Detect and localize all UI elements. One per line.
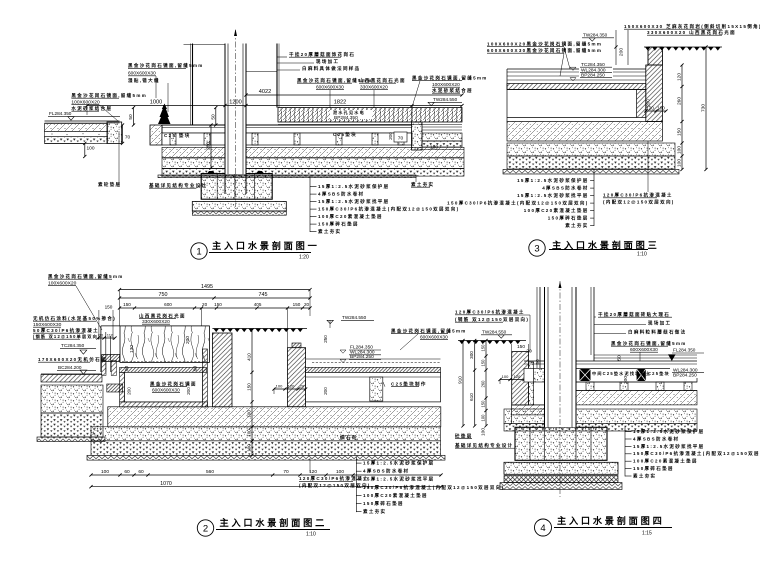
svg-text:100厚C20素混凝土垫层: 100厚C20素混凝土垫层 [318, 213, 383, 220]
svg-text:FL284.350: FL284.350 [673, 348, 696, 353]
svg-text:1:15: 1:15 [642, 531, 652, 537]
svg-text:250: 250 [323, 335, 328, 343]
svg-text:15厚1:2.5水泥砂浆保护层: 15厚1:2.5水泥砂浆保护层 [633, 428, 705, 435]
svg-text:100: 100 [86, 146, 94, 152]
svg-text:现场加工: 现场加工 [316, 58, 339, 65]
svg-text:1200: 1200 [229, 100, 241, 106]
svg-text:2: 2 [203, 524, 208, 535]
svg-text:15厚1:2.5水泥砂浆找平层: 15厚1:2.5水泥砂浆找平层 [318, 198, 390, 205]
svg-text:150厚C30/P6抗渗混凝土(内配双12@150双层双向): 150厚C30/P6抗渗混凝土(内配双12@150双层双向) [447, 200, 588, 207]
svg-text:150: 150 [247, 383, 252, 391]
svg-text:BC284.200: BC284.200 [58, 365, 82, 370]
svg-text:黑金沙花岗石镜面,留缝5mm: 黑金沙花岗石镜面,留缝5mm [128, 62, 204, 69]
svg-text:100: 100 [481, 428, 487, 436]
svg-text:120: 120 [677, 73, 683, 81]
svg-text:150厚C30/P6抗渗混凝土(内配双12@150双层双向): 150厚C30/P6抗渗混凝土(内配双12@150双层双向) [633, 450, 760, 457]
svg-text:主入口水景剖面图二: 主入口水景剖面图二 [220, 517, 328, 528]
svg-text:150厚C30/P6抗渗混凝土(内配双12@150双层双向): 150厚C30/P6抗渗混凝土(内配双12@150双层双向) [318, 206, 459, 213]
svg-text:湿贴,错大缝: 湿贴,错大缝 [128, 77, 160, 84]
svg-text:BP284.350: BP284.350 [334, 115, 358, 121]
svg-text:4: 4 [540, 523, 545, 534]
svg-text:100: 100 [481, 414, 486, 422]
svg-text:260: 260 [481, 380, 486, 388]
svg-text:200: 200 [127, 387, 132, 395]
svg-text:BP284.250: BP284.250 [673, 373, 697, 379]
svg-text:15厚1:2.5水泥砂浆找平层: 15厚1:2.5水泥砂浆找平层 [517, 192, 589, 199]
svg-text:15厚1:2.5水泥砂浆保护层: 15厚1:2.5水泥砂浆保护层 [318, 183, 390, 190]
svg-text:100: 100 [247, 444, 252, 452]
svg-text:200: 200 [185, 336, 191, 344]
svg-text:C25垫块: C25垫块 [333, 131, 357, 138]
svg-text:300: 300 [469, 351, 474, 359]
svg-text:20: 20 [202, 302, 208, 307]
svg-text:100: 100 [677, 146, 683, 154]
svg-text:150: 150 [481, 400, 486, 408]
svg-text:910: 910 [458, 376, 463, 384]
svg-text:4厚SBS防水卷材: 4厚SBS防水卷材 [318, 191, 364, 198]
svg-text:150: 150 [517, 344, 525, 350]
svg-text:130: 130 [129, 345, 135, 353]
svg-text:70: 70 [125, 135, 131, 141]
svg-text:TW284.550: TW284.550 [433, 97, 458, 102]
svg-text:100: 100 [247, 410, 252, 418]
svg-text:750: 750 [159, 292, 168, 298]
svg-text:70: 70 [398, 136, 404, 142]
svg-text:120厚C30/P6抗渗混凝土: 120厚C30/P6抗渗混凝土 [455, 309, 525, 316]
svg-text:100: 100 [657, 106, 665, 111]
svg-text:1:10: 1:10 [637, 252, 647, 258]
svg-text:200: 200 [388, 132, 393, 140]
svg-text:70: 70 [283, 469, 289, 475]
svg-text:150: 150 [123, 302, 131, 307]
svg-text:现场加工: 现场加工 [648, 320, 671, 327]
svg-text:600: 600 [164, 302, 172, 307]
svg-text:100: 100 [247, 429, 252, 437]
svg-text:50: 50 [128, 114, 134, 120]
svg-text:610: 610 [469, 393, 474, 401]
svg-text:30: 30 [99, 333, 104, 338]
svg-text:150厚碎石垫层: 150厚碎石垫层 [363, 500, 404, 507]
svg-text:TC284.350: TC284.350 [61, 343, 85, 348]
svg-text:泄水孔见水电: 泄水孔见水电 [333, 109, 365, 115]
svg-text:100: 100 [677, 159, 683, 167]
svg-text:280: 280 [206, 142, 212, 150]
svg-text:细石砼: 细石砼 [340, 434, 358, 441]
svg-text:1:10: 1:10 [306, 532, 316, 538]
svg-text:20: 20 [526, 349, 532, 355]
svg-text:素土夯实: 素土夯实 [317, 228, 341, 235]
svg-text:150: 150 [481, 344, 486, 352]
svg-text:4厚SBS防水卷材: 4厚SBS防水卷材 [363, 468, 409, 475]
svg-text:FL284.350: FL284.350 [49, 111, 72, 116]
svg-text:100: 100 [430, 145, 438, 151]
svg-text:90: 90 [124, 366, 130, 372]
svg-text:100厚C20素混凝土垫层: 100厚C20素混凝土垫层 [363, 492, 428, 499]
svg-text:白麻料粒料蘑菇石做法: 白麻料粒料蘑菇石做法 [628, 329, 687, 336]
svg-text:100: 100 [502, 374, 509, 379]
svg-text:4厚SBS防水卷材: 4厚SBS防水卷材 [633, 435, 679, 442]
svg-text:C25 垫块: C25 垫块 [164, 132, 191, 139]
svg-text:50: 50 [616, 355, 622, 361]
svg-text:50: 50 [210, 114, 216, 120]
svg-text:410: 410 [247, 353, 252, 361]
svg-text:1:20: 1:20 [299, 255, 309, 261]
svg-text:100厚C20素混凝土垫层: 100厚C20素混凝土垫层 [633, 458, 698, 465]
svg-text:200: 200 [619, 48, 625, 56]
svg-text:100: 100 [276, 384, 283, 389]
svg-text:100厚C20素混凝土垫层: 100厚C20素混凝土垫层 [524, 207, 589, 214]
svg-text:560: 560 [206, 469, 214, 475]
svg-text:150: 150 [293, 302, 301, 307]
svg-text:主入口水景剖面图一: 主入口水景剖面图一 [212, 240, 320, 251]
svg-text:4厚SBS防水卷材: 4厚SBS防水卷材 [542, 185, 588, 192]
svg-text:20: 20 [300, 384, 305, 389]
svg-text:主入口水景剖面图三: 主入口水景剖面图三 [552, 240, 660, 251]
svg-text:1070: 1070 [160, 481, 172, 487]
svg-text:120: 120 [514, 374, 521, 379]
svg-text:中间C25垫水泥找坡凝土: 中间C25垫水泥找坡凝土 [592, 370, 651, 376]
svg-text:15厚1:2.5水泥砂浆找平层: 15厚1:2.5水泥砂浆找平层 [363, 476, 435, 483]
svg-text:100: 100 [336, 469, 344, 475]
svg-text:200: 200 [186, 387, 191, 395]
svg-text:150: 150 [677, 128, 683, 136]
svg-text:150厚碎石垫层: 150厚碎石垫层 [318, 221, 359, 228]
svg-text:主入口水景剖面图四: 主入口水景剖面图四 [557, 515, 665, 526]
svg-text:150: 150 [105, 305, 113, 310]
svg-text:730: 730 [701, 104, 707, 112]
svg-text:素土夯实: 素土夯实 [362, 508, 386, 515]
svg-text:3: 3 [534, 244, 539, 255]
svg-text:150厚C30/P6抗渗混凝土(内配双12@150双层双向): 150厚C30/P6抗渗混凝土(内配双12@150双层双向) [363, 484, 504, 491]
svg-text:120厚C30/P6抗渗混凝土: 120厚C30/P6抗渗混凝土 [603, 192, 673, 199]
svg-text:TW284.550: TW284.550 [342, 315, 367, 320]
svg-text:120: 120 [288, 384, 295, 389]
svg-text:(内配双12@150双层双向): (内配双12@150双层双向) [603, 199, 675, 206]
svg-text:素土夯实: 素土夯实 [632, 472, 656, 479]
svg-text:60: 60 [138, 469, 144, 475]
svg-text:110: 110 [107, 333, 114, 338]
svg-text:1495: 1495 [201, 284, 213, 290]
svg-text:素砼垫层: 素砼垫层 [97, 181, 121, 188]
svg-text:15厚1:2.5水泥砂浆保护层: 15厚1:2.5水泥砂浆保护层 [363, 460, 435, 467]
svg-text:260: 260 [677, 97, 683, 105]
svg-text:TW284.550: TW284.550 [482, 330, 507, 335]
svg-text:1: 1 [196, 247, 201, 258]
svg-text:405: 405 [254, 302, 262, 307]
svg-text:100: 100 [101, 469, 109, 475]
svg-text:15厚1:2.5水泥砂浆找平层: 15厚1:2.5水泥砂浆找平层 [633, 443, 705, 450]
svg-text:(钢筋 双12@150单层双向): (钢筋 双12@150单层双向) [33, 333, 101, 339]
svg-text:150: 150 [481, 359, 486, 367]
svg-text:150厚碎石垫层: 150厚碎石垫层 [548, 215, 589, 222]
svg-text:200: 200 [323, 387, 328, 395]
svg-text:(内配双12@150双层双向): (内配双12@150双层双向) [299, 482, 371, 489]
svg-text:4022: 4022 [259, 89, 271, 95]
svg-text:150厚碎石垫层: 150厚碎石垫层 [633, 465, 674, 472]
svg-text:15厚1:2.5水泥砂浆保护层: 15厚1:2.5水泥砂浆保护层 [517, 177, 589, 184]
svg-text:1822: 1822 [334, 100, 346, 106]
svg-text:745: 745 [259, 292, 268, 298]
svg-text:150: 150 [214, 302, 222, 307]
svg-text:TW284.350: TW284.350 [583, 33, 608, 38]
svg-text:90: 90 [193, 366, 199, 372]
svg-text:白麻料具体做法同样品: 白麻料具体做法同样品 [302, 65, 361, 72]
svg-text:素土夯实: 素土夯实 [564, 222, 588, 229]
svg-text:20: 20 [304, 302, 310, 307]
svg-text:120厚C30/P6抗渗混凝土: 120厚C30/P6抗渗混凝土 [299, 475, 369, 482]
svg-text:1000: 1000 [150, 100, 162, 106]
svg-text:60: 60 [124, 469, 130, 475]
svg-text:120: 120 [646, 106, 654, 111]
